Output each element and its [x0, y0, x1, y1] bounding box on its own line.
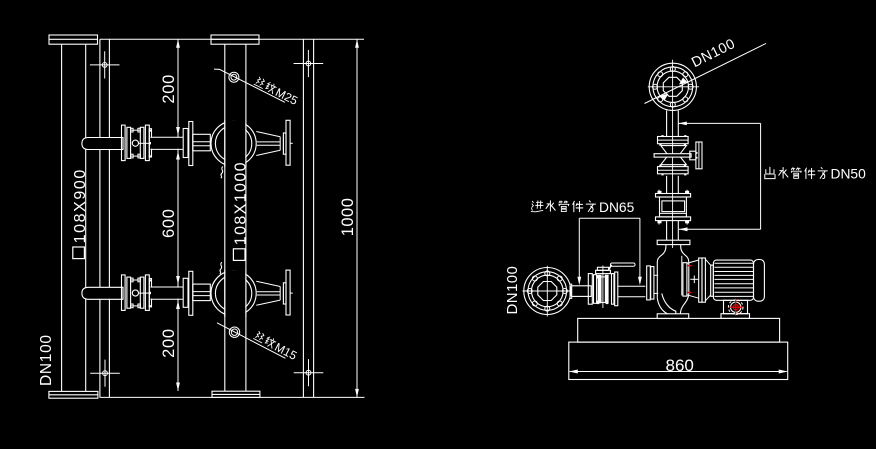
svg-text:DN65: DN65 [599, 200, 635, 215]
svg-text:200: 200 [160, 74, 178, 104]
svg-text:860: 860 [666, 356, 694, 375]
svg-text:1000: 1000 [339, 198, 357, 237]
svg-text:DN100: DN100 [38, 334, 55, 386]
svg-text:DN50: DN50 [831, 166, 867, 181]
svg-text:108X900: 108X900 [72, 168, 89, 243]
svg-text:108X1000: 108X1000 [232, 161, 249, 245]
svg-text:DN100: DN100 [504, 266, 521, 315]
svg-text:600: 600 [160, 208, 178, 238]
svg-text:200: 200 [160, 328, 178, 358]
